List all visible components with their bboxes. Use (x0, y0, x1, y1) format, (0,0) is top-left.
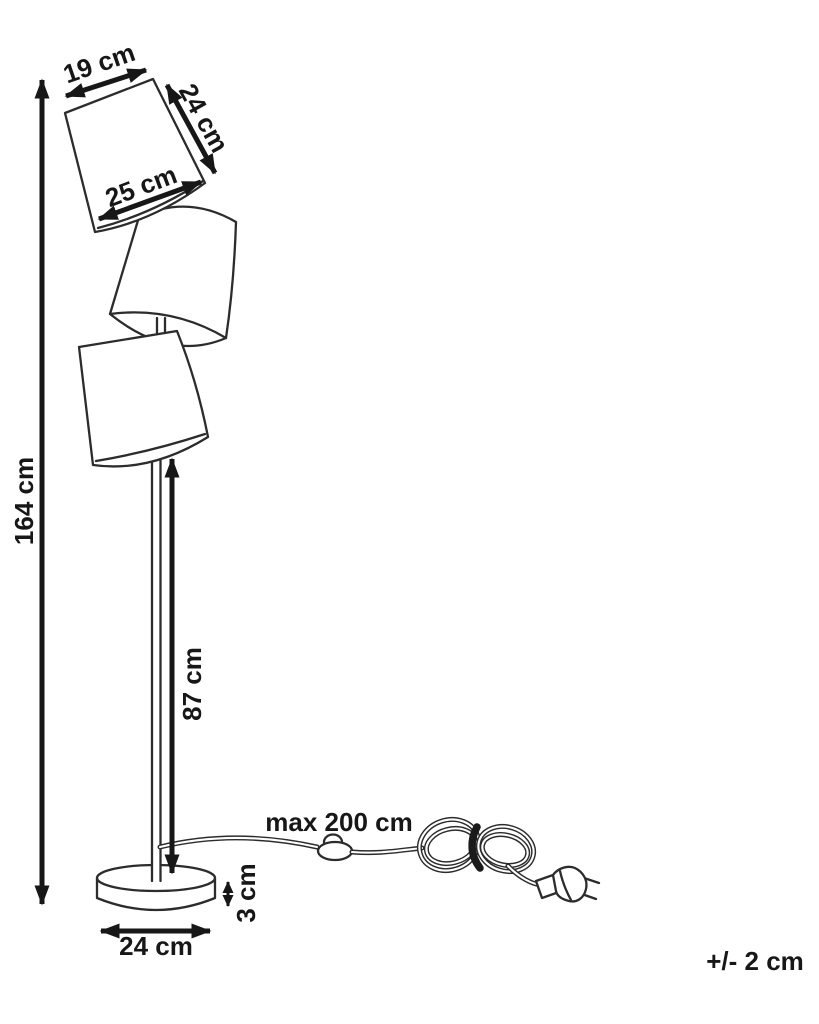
lamp-shade-middle (110, 207, 236, 346)
total-height-label: 164 cm (9, 457, 39, 545)
lamp-shade-bottom (79, 331, 208, 466)
tolerance-label: +/- 2 cm (706, 946, 804, 976)
diagram-drawing: 19 cm 24 cm 25 cm 164 cm 87 cm max 200 c… (0, 0, 819, 1024)
cable-length-label: max 200 cm (265, 807, 412, 837)
shade-top-width-label: 19 cm (59, 37, 138, 89)
pole-height-label: 87 cm (177, 647, 207, 721)
inline-switch (318, 835, 352, 861)
floor-lamp-dimension-diagram: 19 cm 24 cm 25 cm 164 cm 87 cm max 200 c… (0, 0, 819, 1024)
lamp-pole (152, 450, 161, 881)
base-height-label: 3 cm (231, 863, 261, 922)
base-diameter-label: 24 cm (119, 931, 193, 961)
cable-coil (413, 812, 539, 878)
power-plug (536, 867, 599, 902)
